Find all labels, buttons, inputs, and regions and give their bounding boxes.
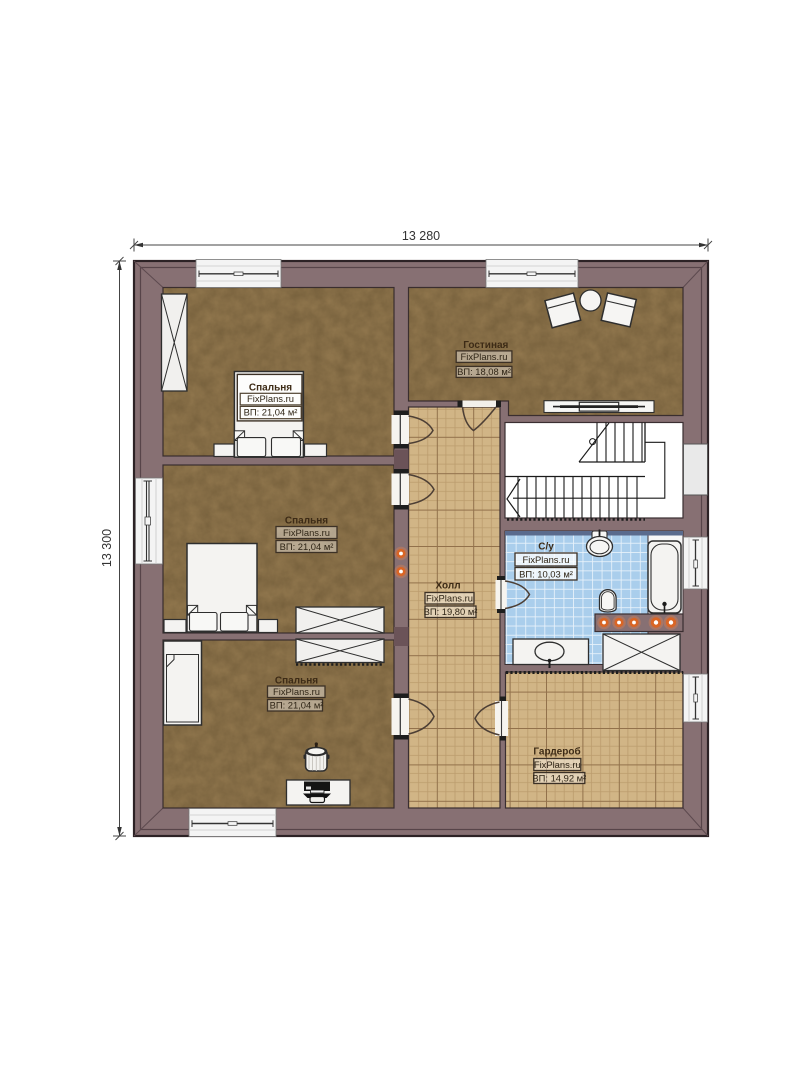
svg-text:FixPlans.ru: FixPlans.ru <box>426 593 473 604</box>
svg-text:FixPlans.ru: FixPlans.ru <box>461 351 508 362</box>
svg-text:FixPlans.ru: FixPlans.ru <box>534 759 581 770</box>
svg-text:ВП: 21,04 м²: ВП: 21,04 м² <box>270 700 324 711</box>
svg-text:ВП: 10,03 м²: ВП: 10,03 м² <box>519 568 573 579</box>
svg-text:FixPlans.ru: FixPlans.ru <box>283 527 330 538</box>
svg-text:Гостиная: Гостиная <box>463 340 508 351</box>
svg-text:Спальня: Спальня <box>249 383 292 394</box>
svg-text:ВП: 21,04 м²: ВП: 21,04 м² <box>244 407 298 418</box>
svg-text:С/у: С/у <box>538 542 554 553</box>
svg-text:Спальня: Спальня <box>275 676 318 687</box>
svg-text:Холл: Холл <box>435 581 460 592</box>
svg-text:Гардероб: Гардероб <box>533 746 580 758</box>
svg-text:Спальня: Спальня <box>285 516 328 527</box>
svg-text:13 300: 13 300 <box>100 529 114 567</box>
svg-text:FixPlans.ru: FixPlans.ru <box>247 393 294 404</box>
svg-text:ВП: 14,92 м²: ВП: 14,92 м² <box>532 772 586 783</box>
svg-text:ВП: 19,80 м²: ВП: 19,80 м² <box>424 606 478 617</box>
svg-text:ВП: 18,08 м²: ВП: 18,08 м² <box>457 366 511 377</box>
svg-text:FixPlans.ru: FixPlans.ru <box>273 686 320 697</box>
svg-text:13 280: 13 280 <box>402 229 440 243</box>
svg-text:ВП: 21,04 м²: ВП: 21,04 м² <box>280 541 334 552</box>
svg-text:FixPlans.ru: FixPlans.ru <box>523 554 570 565</box>
